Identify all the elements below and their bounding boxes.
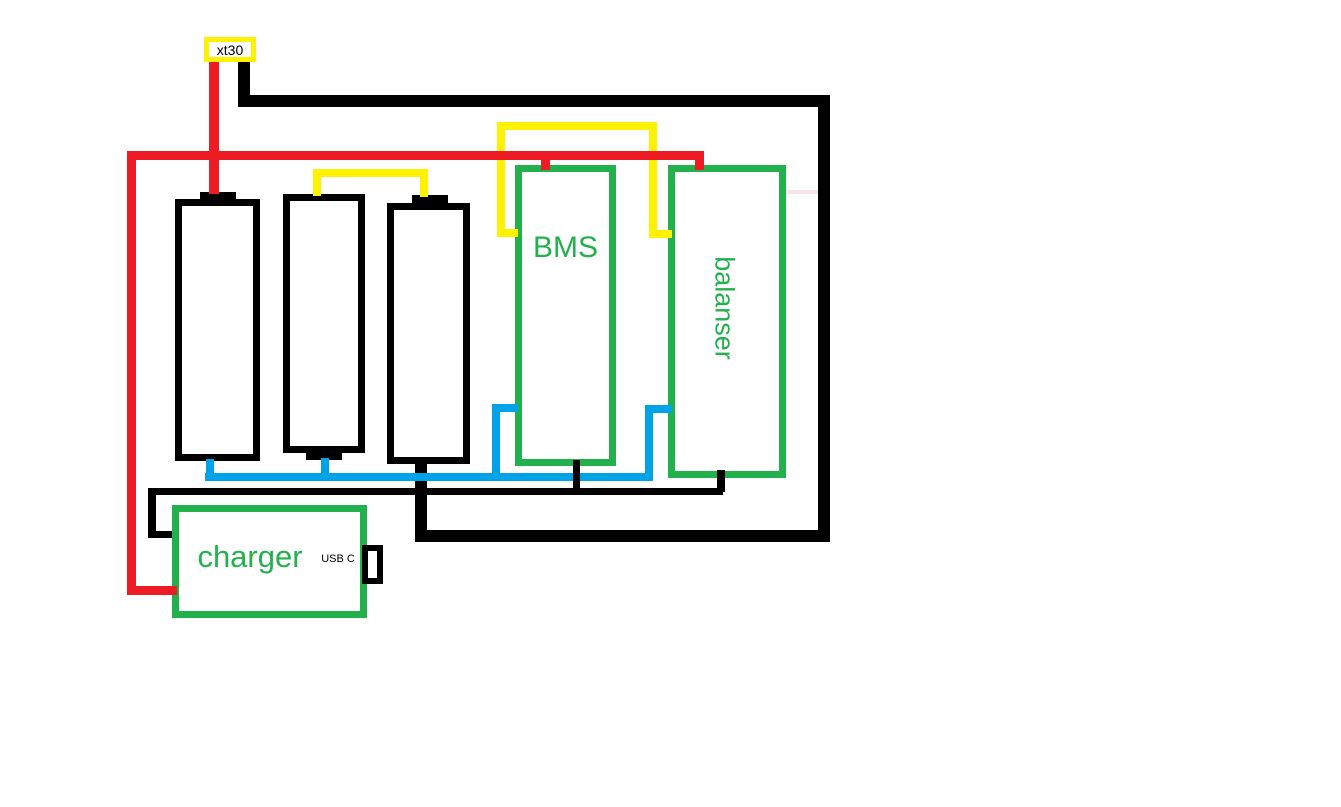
- negative-wire-bottom-run: [421, 530, 830, 542]
- yellow-wire-balancer-stub: [649, 230, 672, 238]
- black-wire-mid-run: [148, 488, 723, 495]
- yellow-wire-bridge-top: [497, 122, 657, 130]
- yellow-wire-battery2-battery3-run: [313, 169, 428, 177]
- blue-wire-bms-riser: [492, 404, 500, 477]
- battery-cell-3-positive-terminal: [412, 195, 448, 208]
- battery-cell-2: [283, 194, 365, 453]
- black-wire-bms-stub: [573, 460, 580, 490]
- xt30-label: xt30: [217, 42, 243, 58]
- bms-label: BMS: [515, 233, 616, 263]
- usb-c-port: [362, 545, 383, 584]
- positive-wire-bms-stub: [541, 158, 550, 170]
- battery-wiring-diagram: BMS balanser charger USB C xt30: [0, 0, 1341, 807]
- yellow-wire-bms-stub: [497, 229, 518, 237]
- negative-wire-top-run: [238, 95, 830, 107]
- yellow-wire-bridge-left-drop: [497, 122, 505, 237]
- battery-cell-1: [175, 199, 260, 461]
- charger-label: charger: [180, 541, 320, 572]
- yellow-wire-battery3-stub: [420, 169, 428, 197]
- xt30-connector: xt30: [204, 37, 256, 62]
- positive-wire-charger-stub: [127, 586, 177, 595]
- blue-wire-balancer-riser: [645, 405, 653, 476]
- negative-wire-right-run: [818, 95, 830, 542]
- yellow-wire-bridge-right-drop: [649, 122, 657, 238]
- blue-wire-bms-stub: [492, 404, 518, 412]
- positive-wire-left-drop: [127, 151, 136, 595]
- blue-wire-balancer-stub: [645, 405, 672, 413]
- black-wire-balancer-stub: [717, 470, 725, 492]
- blue-wire-battery1-stub: [206, 459, 214, 477]
- positive-wire-xt30-battery1: [209, 62, 219, 194]
- bms-box: [515, 165, 616, 466]
- positive-wire-balancer-stub: [695, 158, 704, 170]
- blue-wire-battery2-stub: [321, 458, 329, 477]
- balancer-label: balanser: [711, 256, 738, 360]
- battery-cell-3: [387, 203, 470, 464]
- positive-wire-top-run: [127, 151, 704, 160]
- blue-wire-bottom-run: [205, 473, 653, 481]
- usb-c-label: USB C: [316, 554, 360, 565]
